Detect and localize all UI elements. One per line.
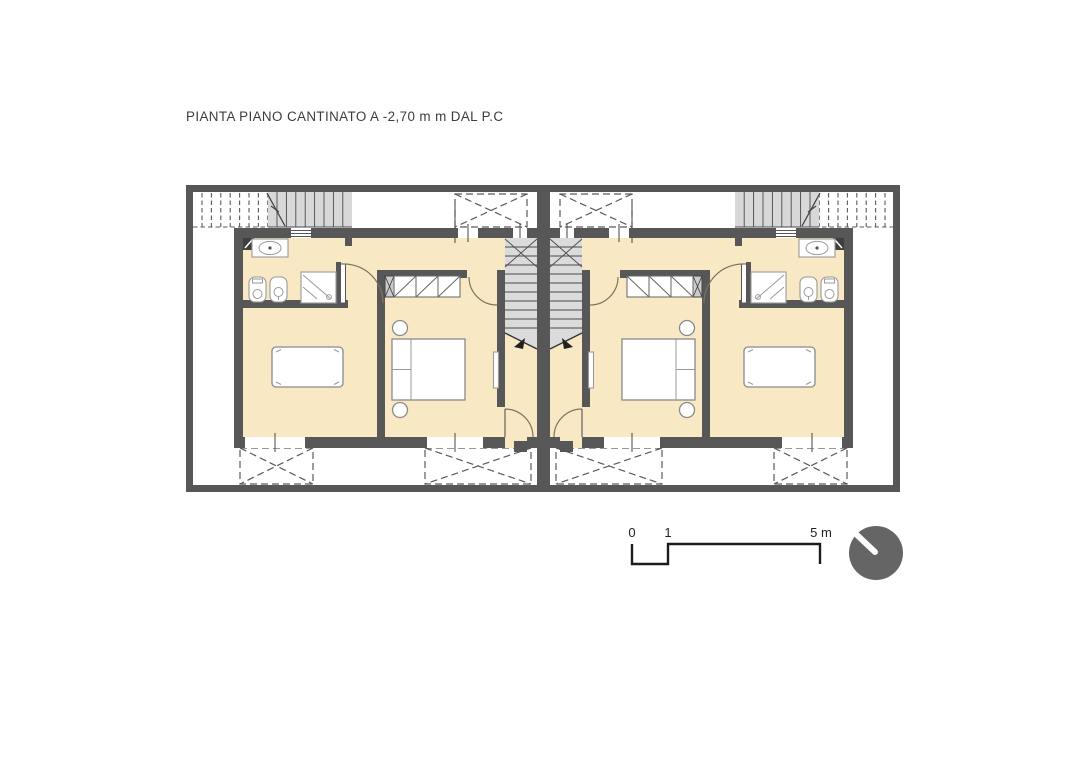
floor-plan-drawing: PIANTA PIANO CANTINATO A -2,70 m m DAL P…	[0, 0, 1085, 768]
scale-bar-line	[632, 544, 820, 564]
north-indicator	[849, 526, 903, 580]
party-wall	[537, 185, 550, 492]
page-title: PIANTA PIANO CANTINATO A -2,70 m m DAL P…	[186, 109, 503, 124]
unit-left	[193, 192, 537, 484]
scale-label-0: 0	[628, 525, 635, 540]
scale-label-5m: 5 m	[810, 525, 832, 540]
unit-right	[550, 192, 894, 484]
scale-bar: 0 1 5 m	[628, 525, 831, 564]
floor-plan-canvas: PIANTA PIANO CANTINATO A -2,70 m m DAL P…	[0, 0, 1085, 768]
scale-label-1: 1	[664, 525, 671, 540]
